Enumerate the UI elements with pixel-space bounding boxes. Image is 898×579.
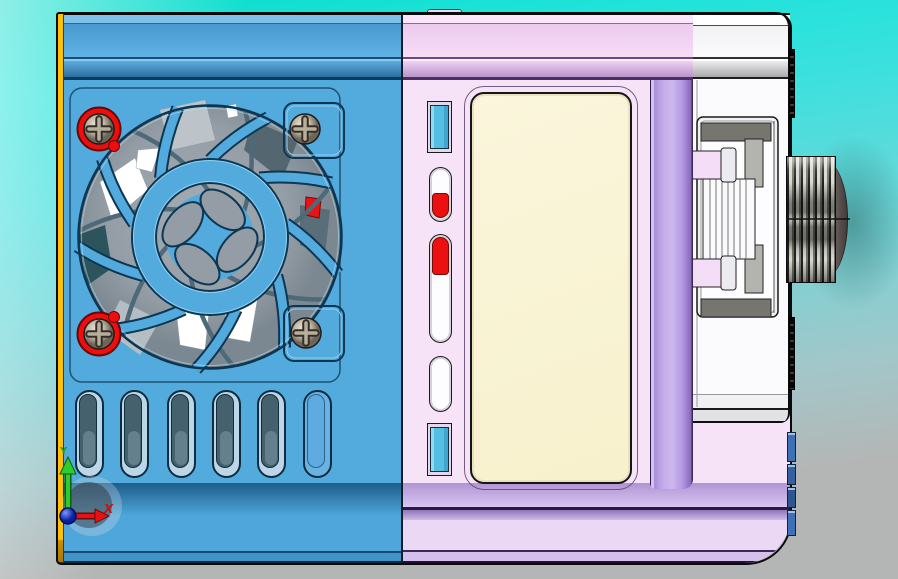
vent-dark <box>261 394 279 468</box>
screw-bottom-right[interactable] <box>291 318 321 348</box>
x-axis-label: X <box>103 502 114 516</box>
led-slot-3[interactable] <box>429 356 452 412</box>
axis-triad: Y X <box>38 443 138 543</box>
hinge-segment <box>787 464 796 485</box>
led-slot-2[interactable] <box>429 234 452 343</box>
hinge-segment <box>787 487 796 508</box>
top-tab <box>427 9 462 14</box>
hinge-strip[interactable] <box>787 432 796 538</box>
vent-slot-5[interactable] <box>257 390 286 478</box>
rotary-knob[interactable] <box>786 156 836 283</box>
hinge-segment <box>787 510 796 536</box>
latch-shadow-top <box>701 123 771 141</box>
indicator-window-bottom-glass <box>430 427 449 472</box>
vent-dark <box>171 394 189 468</box>
vent-dark <box>216 394 234 468</box>
latch-tab-cap-bottom <box>721 256 736 290</box>
knob-centerline <box>786 218 850 220</box>
latch-shadow-bottom <box>701 299 771 317</box>
indicator-window-top-glass <box>430 105 449 149</box>
latch-mechanism[interactable] <box>693 13 790 423</box>
cad-viewport: Y X <box>0 0 898 579</box>
screw-top-left[interactable] <box>84 114 114 144</box>
edge-vent-strip-top <box>789 49 795 118</box>
latch-ribbed-block <box>703 179 755 259</box>
vent-slot-4[interactable] <box>212 390 241 478</box>
led-slot-2-red <box>432 237 449 275</box>
screw-bottom-left[interactable] <box>84 319 114 349</box>
screw-top-right[interactable] <box>290 114 320 144</box>
fan-assembly[interactable] <box>63 79 363 391</box>
origin-sphere <box>60 508 76 524</box>
rounded-edge-bar[interactable] <box>650 80 693 489</box>
led-slot-1-red <box>432 193 449 218</box>
side-panel[interactable] <box>693 13 790 423</box>
vent-slot-6[interactable] <box>303 390 332 478</box>
indicator-window-bottom[interactable] <box>427 423 452 476</box>
indicator-window-top[interactable] <box>427 101 452 153</box>
led-slot-1[interactable] <box>429 167 452 222</box>
y-axis-label: Y <box>59 446 68 457</box>
hinge-segment <box>787 432 796 462</box>
edge-vent-strip-bottom <box>789 317 795 390</box>
latch-tab-cap-top <box>721 148 736 182</box>
vent-dark <box>307 394 325 468</box>
lcd-screen[interactable] <box>470 92 632 484</box>
vent-slot-3[interactable] <box>167 390 196 478</box>
